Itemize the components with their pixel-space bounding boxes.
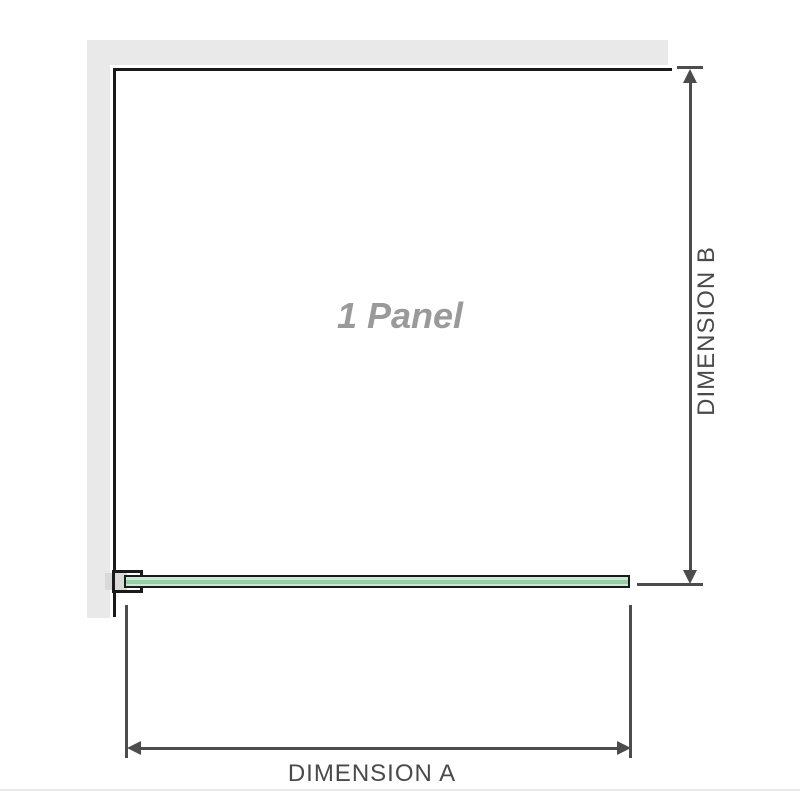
wall-left-bar — [87, 40, 110, 618]
bottom-divider — [0, 789, 800, 791]
dimension-a-line — [131, 747, 627, 750]
dimension-a-extension-line-right — [629, 605, 632, 758]
dimension-b-arrow-down-icon — [683, 570, 697, 584]
panel-left-edge — [113, 68, 116, 617]
wall-top-bar — [87, 40, 668, 65]
panel-count-label: 1 Panel — [300, 296, 500, 336]
panel-top-edge — [113, 68, 672, 71]
glass-panel-core-stripe — [126, 580, 628, 584]
dimension-a-arrow-left-icon — [127, 741, 141, 755]
dimension-a-label: DIMENSION A — [272, 760, 472, 788]
dimension-b-label: DIMENSION B — [693, 211, 721, 451]
panel-dimension-diagram: 1 Panel DIMENSION B DIMENSION A — [0, 0, 800, 800]
dimension-a-arrow-right-icon — [617, 741, 631, 755]
dimension-a-extension-line-left — [125, 605, 128, 758]
dimension-b-arrow-up-icon — [683, 69, 697, 83]
dimension-b-line — [689, 74, 692, 578]
glass-panel-bar — [124, 575, 630, 588]
